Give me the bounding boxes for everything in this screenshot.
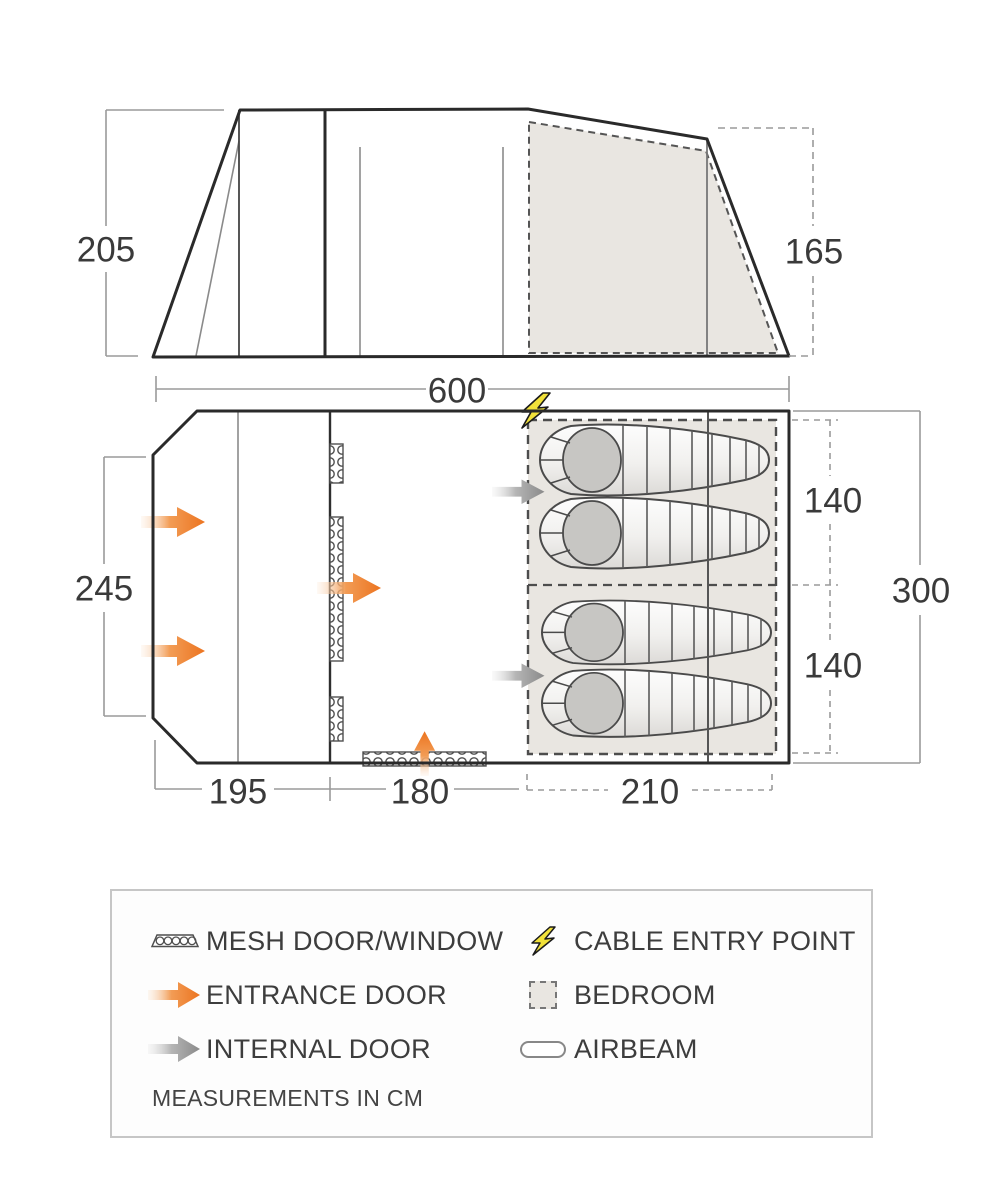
bedroom-icon — [512, 981, 574, 1009]
tent-spec-diagram: 205 165 600 245 140 140 300 195 180 210 … — [0, 0, 983, 1200]
legend-item-cable-entry: CABLE ENTRY POINT — [512, 921, 856, 961]
mesh-icon — [144, 933, 206, 949]
legend-label: CABLE ENTRY POINT — [574, 926, 856, 957]
legend-label: INTERNAL DOOR — [206, 1034, 431, 1065]
legend-item-airbeam: AIRBEAM — [512, 1029, 698, 1069]
legend-item-entrance-door: ENTRANCE DOOR — [144, 975, 447, 1015]
legend-box: MESH DOOR/WINDOW ENTRANCE DOOR — [110, 889, 873, 1138]
dim-rear-height-label: 165 — [785, 232, 843, 271]
mesh-panel — [330, 444, 343, 483]
legend-item-bedroom: BEDROOM — [512, 975, 716, 1015]
airbeam-icon — [512, 1041, 574, 1058]
dim-front-depth-label: 245 — [75, 569, 133, 608]
dim-total-depth-label: 300 — [892, 571, 950, 610]
legend-item-internal-door: INTERNAL DOOR — [144, 1029, 431, 1069]
dim-elevation-height-label: 205 — [77, 230, 135, 269]
tent-drawings: 205 165 600 245 140 140 300 195 180 210 — [0, 0, 983, 880]
legend-label: BEDROOM — [574, 980, 716, 1011]
internal-door-icon — [144, 1034, 206, 1064]
dim-bedroom-top-width-label: 140 — [804, 481, 862, 520]
dim-porch-length-label: 195 — [209, 772, 267, 811]
dim-living-length-label: 180 — [391, 772, 449, 811]
dim-total-width-label: 600 — [428, 371, 486, 410]
mesh-panel — [330, 697, 343, 741]
measurements-note: MEASUREMENTS IN CM — [152, 1085, 423, 1112]
legend-item-mesh: MESH DOOR/WINDOW — [144, 921, 503, 961]
cable-entry-icon — [512, 925, 574, 957]
dim-bedroom-bottom-width-label: 140 — [804, 646, 862, 685]
legend-label: ENTRANCE DOOR — [206, 980, 447, 1011]
legend-label: MESH DOOR/WINDOW — [206, 926, 503, 957]
floorplan-view — [141, 393, 789, 776]
elevation-view — [153, 109, 789, 357]
legend-label: AIRBEAM — [574, 1034, 698, 1065]
dim-bedroom-length-label: 210 — [621, 772, 679, 811]
entrance-door-icon — [144, 980, 206, 1010]
